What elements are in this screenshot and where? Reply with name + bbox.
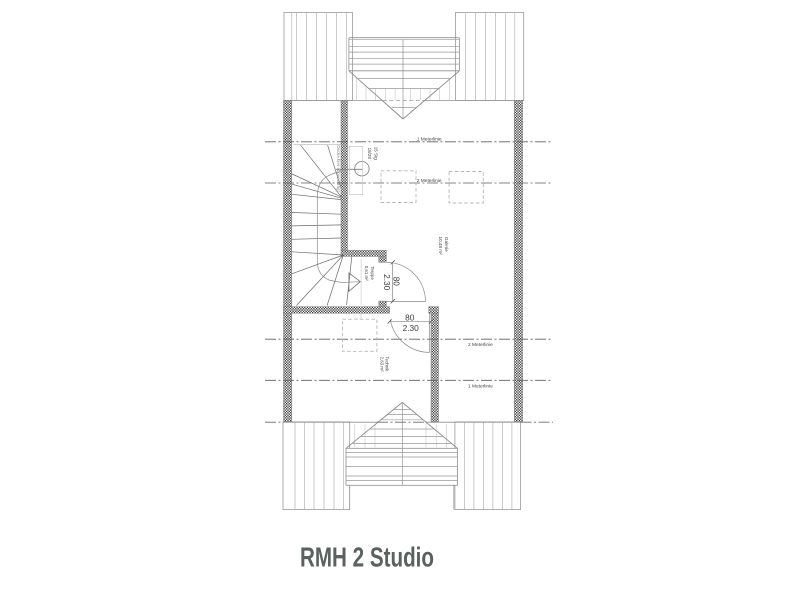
- svg-text:2.30: 2.30: [382, 274, 392, 291]
- svg-text:15 Stg: 15 Stg: [374, 147, 379, 161]
- svg-text:80: 80: [392, 277, 402, 287]
- svg-text:RMH 2 Studio: RMH 2 Studio: [300, 542, 434, 573]
- svg-text:2,63 m²: 2,63 m²: [379, 357, 384, 372]
- svg-text:18/28: 18/28: [367, 148, 372, 160]
- svg-text:2.30: 2.30: [403, 323, 420, 333]
- svg-text:1 Meterlinie: 1 Meterlinie: [417, 137, 442, 143]
- svg-text:Treppe: Treppe: [370, 266, 375, 280]
- svg-text:2 Meterlinie: 2 Meterlinie: [468, 342, 493, 348]
- svg-text:10,48 m²: 10,48 m²: [438, 237, 443, 256]
- svg-text:Galerie: Galerie: [444, 237, 449, 252]
- svg-text:1 Meterlinie: 1 Meterlinie: [468, 384, 493, 390]
- svg-text:Technik: Technik: [385, 356, 390, 372]
- svg-text:80: 80: [405, 312, 415, 322]
- svg-text:2 Meterlinie: 2 Meterlinie: [417, 178, 442, 184]
- svg-text:Decke hier abgeschrägt: Decke hier abgeschrägt: [336, 145, 341, 192]
- svg-text:0,61 m²: 0,61 m²: [364, 266, 369, 281]
